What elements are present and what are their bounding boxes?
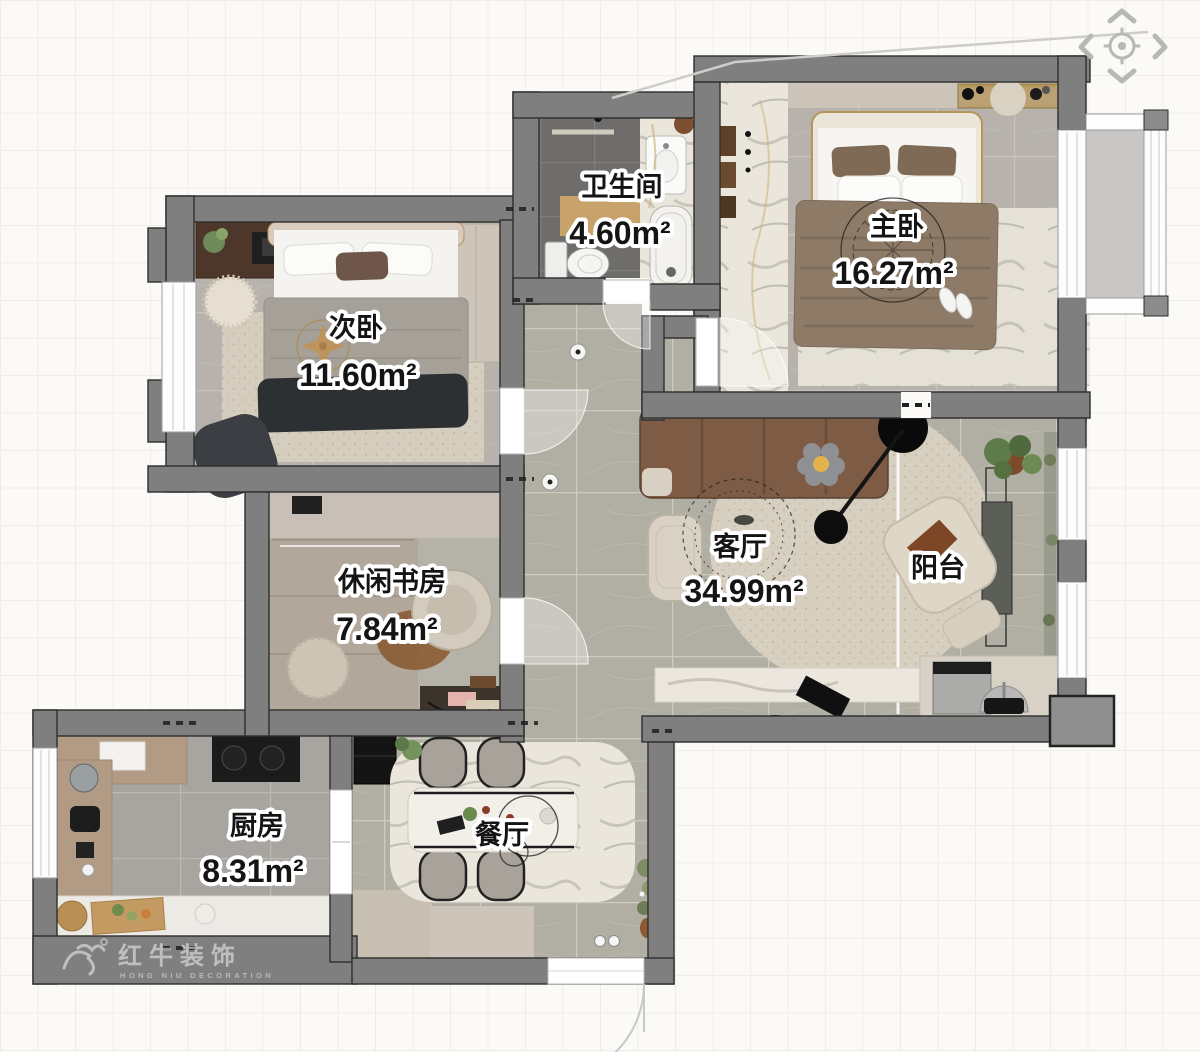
desk-plant-leaf bbox=[216, 228, 228, 240]
pan-down-button[interactable] bbox=[1110, 71, 1134, 81]
pan-left-button[interactable] bbox=[1081, 36, 1091, 57]
entry-door-arc bbox=[548, 984, 644, 1052]
door-master-bedroom[interactable] bbox=[696, 318, 718, 386]
label-bathroom: 卫生间 bbox=[582, 172, 663, 202]
wall-segment bbox=[148, 228, 166, 282]
drain-icon bbox=[666, 267, 676, 277]
wall-segment bbox=[245, 492, 269, 736]
area-kitchen: 8.31m² bbox=[202, 853, 303, 889]
small-appliance bbox=[76, 842, 94, 858]
burner-icon bbox=[222, 746, 246, 770]
dining-chair bbox=[420, 738, 466, 788]
window-kitchen bbox=[33, 748, 57, 878]
toilet-bowl bbox=[567, 248, 609, 280]
dining-chair bbox=[420, 850, 466, 900]
label-master-bedroom: 主卧 bbox=[870, 212, 924, 242]
plant-leaf bbox=[1046, 534, 1058, 546]
desk-box bbox=[470, 676, 496, 688]
floor-plan-viewer: 卫生间 4.60m² 主卧 16.27m² 次卧 11.60m² 休闲书房 7.… bbox=[0, 0, 1200, 1052]
door-bathroom[interactable] bbox=[603, 280, 650, 302]
round-board-icon bbox=[57, 901, 87, 931]
dining-chair bbox=[478, 738, 524, 788]
pan-right-button[interactable] bbox=[1155, 36, 1165, 57]
bay-window bbox=[1058, 110, 1168, 316]
bedroom2-pouf bbox=[205, 277, 255, 327]
master-pillow-brown bbox=[897, 145, 956, 178]
label-balcony: 阳台 bbox=[911, 552, 965, 583]
hallway-floor[interactable] bbox=[524, 304, 642, 742]
veggie-icon bbox=[127, 911, 137, 921]
wall-segment bbox=[642, 716, 1090, 742]
plate-icon bbox=[195, 904, 215, 924]
pan-up-button[interactable] bbox=[1110, 11, 1134, 21]
pot-icon bbox=[70, 764, 98, 792]
label-study: 休闲书房 bbox=[337, 567, 446, 597]
watermark-brand-en: HONG NIU DECORATION bbox=[120, 971, 274, 980]
wall-segment bbox=[648, 742, 674, 984]
wall-segment bbox=[148, 466, 524, 492]
area-study: 7.84m² bbox=[336, 611, 437, 647]
floor-plan-canvas: 卫生间 4.60m² 主卧 16.27m² 次卧 11.60m² 休闲书房 7.… bbox=[0, 0, 1200, 1052]
washer-panel bbox=[933, 662, 991, 674]
bed2-cushion bbox=[336, 251, 389, 281]
watermark-brand: 红牛装饰 bbox=[118, 942, 242, 970]
study-round-rug bbox=[288, 638, 348, 698]
tv-console bbox=[655, 668, 923, 702]
window-balcony bbox=[1058, 582, 1086, 678]
wall-segment bbox=[33, 710, 524, 736]
wall-segment bbox=[650, 284, 720, 310]
faucet-icon bbox=[663, 143, 669, 149]
window-second-bedroom bbox=[162, 282, 196, 432]
sofa-chaise-cushion bbox=[642, 468, 672, 496]
window-balcony bbox=[1058, 448, 1086, 540]
door-second-bedroom[interactable] bbox=[500, 388, 524, 454]
wall-segment bbox=[1058, 418, 1086, 448]
master-pillow-brown bbox=[831, 145, 890, 178]
ac-platform bbox=[1050, 696, 1114, 746]
plant-leaf bbox=[1044, 454, 1056, 466]
burner-icon bbox=[260, 746, 284, 770]
area-bathroom: 4.60m² bbox=[569, 215, 670, 251]
fruit-icon bbox=[141, 909, 151, 919]
label-kitchen: 厨房 bbox=[230, 811, 284, 841]
study-cabinet bbox=[292, 496, 322, 514]
door-study[interactable] bbox=[500, 598, 524, 664]
label-dining-room: 餐厅 bbox=[475, 820, 529, 850]
wall-segment bbox=[1058, 540, 1086, 582]
wall-segment bbox=[642, 392, 1090, 418]
wall-segment bbox=[694, 82, 720, 316]
air-fryer-icon bbox=[70, 806, 100, 832]
area-second-bedroom: 11.60m² bbox=[299, 357, 416, 393]
plant-icon bbox=[395, 737, 409, 751]
sink-panel bbox=[984, 698, 1024, 714]
label-second-bedroom: 次卧 bbox=[329, 313, 383, 343]
table-greens bbox=[463, 807, 477, 821]
berry-icon bbox=[482, 806, 490, 814]
label-living-room: 客厅 bbox=[713, 531, 767, 562]
plant-leaf bbox=[1043, 614, 1055, 626]
bird-decor-icon bbox=[82, 864, 94, 876]
socket-icon bbox=[595, 936, 606, 947]
socket-icon bbox=[609, 936, 620, 947]
wall-segment bbox=[166, 196, 523, 222]
entry-mat-2 bbox=[430, 906, 534, 958]
navigation-controls bbox=[1081, 11, 1165, 81]
wall-segment bbox=[1058, 56, 1086, 130]
wall-segment bbox=[513, 92, 539, 304]
wall-segment bbox=[513, 92, 713, 118]
area-living-room: 34.99m² bbox=[684, 573, 803, 609]
area-master-bedroom: 16.27m² bbox=[834, 255, 953, 291]
veggie-icon bbox=[112, 904, 124, 916]
